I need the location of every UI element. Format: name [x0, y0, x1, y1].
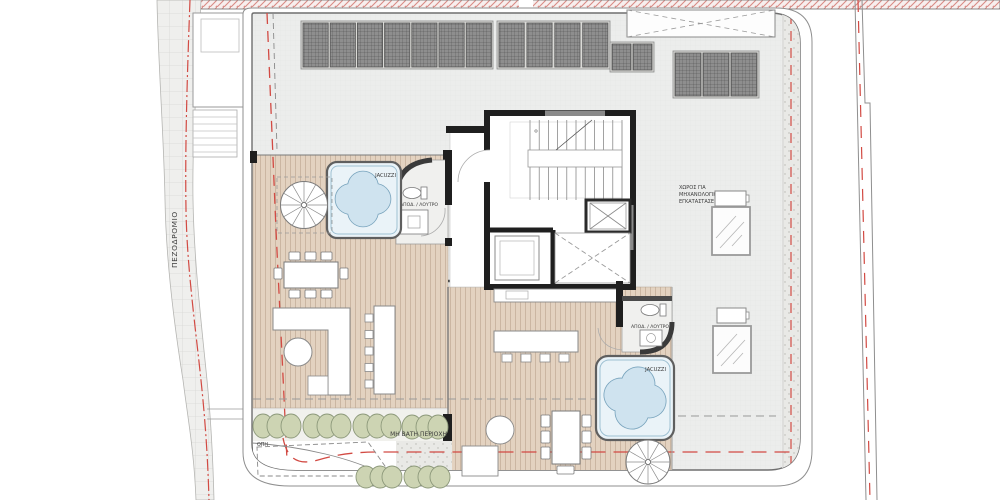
sidewalk-label: ΠΕΖΟΔΡΟΜΙΟ	[170, 211, 179, 268]
mech-room-label-1: ΧΩΡΟΣ ΓΙΑ	[679, 185, 706, 191]
skylight-x	[627, 10, 775, 37]
counter-right-deck	[494, 289, 618, 302]
bush-cluster	[253, 414, 301, 438]
mech-room-label-3: ΕΓΚΑΤΑΣΤΑΣΕΙΣ	[679, 199, 719, 205]
roof-floor-plan: ΠΕΖΟΔΡΟΜΙΟ	[0, 0, 1000, 500]
round-table-left	[284, 338, 312, 366]
bath-right-label: ΑΠΟΔ. / ΛΟΥΤΡΟ	[631, 324, 669, 330]
toilet	[403, 188, 421, 199]
bar-island-left	[365, 306, 395, 394]
secondary-shaft	[495, 236, 539, 280]
spiral-stair-right	[626, 440, 670, 484]
bath-left-label: ΑΠΟΔ. / ΛΟΥΤΡΟ	[400, 202, 438, 208]
void-shaft	[555, 233, 630, 283]
vanity	[400, 210, 428, 234]
bush-cluster	[404, 466, 450, 488]
elevator-shaft	[586, 200, 630, 232]
mech-unit-bottom	[713, 308, 751, 373]
mech-unit-top	[712, 191, 750, 255]
bush-cluster	[303, 414, 351, 438]
bathroom-left: ΑΠΟΔ. / ΛΟΥΤΡΟ	[396, 157, 452, 246]
round-table-right	[486, 416, 514, 444]
plan-canvas: ΠΕΖΟΔΡΟΜΙΟ	[0, 0, 1000, 500]
toilet	[641, 305, 659, 316]
jacuzzi-left: JACUZZI	[327, 162, 401, 238]
non-walkable-label: ΜΗ ΒΑΤΗ ΠΕΡΙΟΧΗ	[390, 431, 447, 438]
bush-cluster	[356, 466, 402, 488]
vanity	[640, 330, 662, 346]
core	[443, 111, 634, 288]
jacuzzi-right-label: JACUZZI	[644, 367, 666, 373]
core-vestibule	[450, 132, 487, 287]
jacuzzi-right: JACUZZI	[596, 356, 674, 440]
floor-opening-label: ΟΠΗ	[257, 442, 268, 448]
jacuzzi-left-label: JACUZZI	[374, 173, 396, 179]
